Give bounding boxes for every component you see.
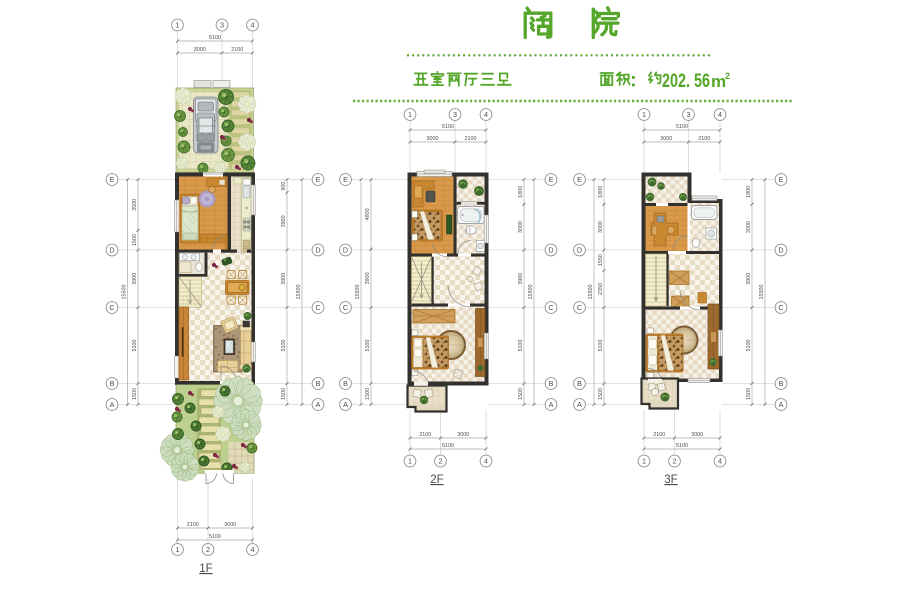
svg-text:1800: 1800 xyxy=(598,186,604,198)
svg-text:2: 2 xyxy=(725,71,730,81)
svg-text:1: 1 xyxy=(642,457,646,466)
svg-text:1: 1 xyxy=(408,110,412,119)
svg-text:4800: 4800 xyxy=(365,208,371,220)
svg-text:1500: 1500 xyxy=(132,388,138,400)
svg-text:C: C xyxy=(778,303,783,312)
svg-text:A: A xyxy=(549,400,554,409)
svg-text:4: 4 xyxy=(484,110,488,119)
svg-text:3900: 3900 xyxy=(746,273,752,285)
svg-text:15500: 15500 xyxy=(122,285,128,300)
svg-text:4: 4 xyxy=(251,21,255,30)
svg-text:3900: 3900 xyxy=(281,215,287,227)
svg-text:5100: 5100 xyxy=(442,124,454,130)
svg-text:B: B xyxy=(577,379,582,388)
svg-text:3000: 3000 xyxy=(194,47,206,53)
svg-text:5100: 5100 xyxy=(365,340,371,352)
svg-text:3: 3 xyxy=(220,21,224,30)
svg-text:3900: 3900 xyxy=(132,273,138,285)
svg-text:2100: 2100 xyxy=(419,432,431,438)
svg-text:B: B xyxy=(779,379,784,388)
svg-text:2: 2 xyxy=(439,457,443,466)
svg-text:m: m xyxy=(711,72,726,91)
svg-text:B: B xyxy=(343,379,348,388)
svg-text:E: E xyxy=(549,175,554,184)
svg-text:1500: 1500 xyxy=(132,234,138,246)
svg-text:5100: 5100 xyxy=(442,443,454,449)
svg-text:4: 4 xyxy=(251,545,255,554)
svg-text:1F: 1F xyxy=(199,563,212,575)
svg-text:5100: 5100 xyxy=(676,124,688,130)
svg-text:4: 4 xyxy=(718,110,722,119)
svg-text:15500: 15500 xyxy=(296,285,302,300)
svg-text:5100: 5100 xyxy=(281,340,287,352)
svg-text:E: E xyxy=(343,175,348,184)
svg-text:3900: 3900 xyxy=(365,272,371,284)
svg-text:B: B xyxy=(110,379,115,388)
svg-text:D: D xyxy=(109,246,114,255)
svg-text:1500: 1500 xyxy=(746,388,752,400)
svg-text:3000: 3000 xyxy=(457,432,469,438)
svg-text:C: C xyxy=(343,303,348,312)
svg-text:2100: 2100 xyxy=(653,432,665,438)
svg-text:3500: 3500 xyxy=(132,199,138,211)
svg-text:15500: 15500 xyxy=(528,285,534,300)
svg-text:3: 3 xyxy=(687,110,691,119)
svg-text:E: E xyxy=(779,175,784,184)
svg-text:1: 1 xyxy=(408,457,412,466)
svg-text:3900: 3900 xyxy=(281,273,287,285)
svg-text:A: A xyxy=(343,400,348,409)
svg-text:B: B xyxy=(549,379,554,388)
svg-text:D: D xyxy=(315,246,320,255)
svg-text:1: 1 xyxy=(642,110,646,119)
svg-text:15500: 15500 xyxy=(355,285,361,300)
svg-text:5100: 5100 xyxy=(676,443,688,449)
svg-text:2100: 2100 xyxy=(187,522,199,528)
svg-text:3000: 3000 xyxy=(224,522,236,528)
svg-text:2F: 2F xyxy=(430,474,443,486)
svg-text:C: C xyxy=(577,303,582,312)
svg-text:C: C xyxy=(548,303,553,312)
svg-text:202. 56: 202. 56 xyxy=(662,71,710,92)
svg-text:E: E xyxy=(110,175,115,184)
svg-text:1500: 1500 xyxy=(598,388,604,400)
svg-text:2350: 2350 xyxy=(598,283,604,295)
svg-text:1: 1 xyxy=(176,545,180,554)
svg-text:3000: 3000 xyxy=(691,432,703,438)
svg-text:1500: 1500 xyxy=(281,388,287,400)
svg-text:D: D xyxy=(548,246,553,255)
svg-text:B: B xyxy=(316,379,321,388)
svg-text:1500: 1500 xyxy=(365,388,371,400)
svg-text:D: D xyxy=(343,246,348,255)
svg-text:4: 4 xyxy=(484,457,488,466)
svg-text:5100: 5100 xyxy=(598,340,604,352)
svg-text:3: 3 xyxy=(453,110,457,119)
svg-text:5100: 5100 xyxy=(132,340,138,352)
svg-text:5100: 5100 xyxy=(209,35,221,41)
svg-text:2100: 2100 xyxy=(698,136,710,142)
svg-text:3000: 3000 xyxy=(746,221,752,233)
svg-text:1500: 1500 xyxy=(518,388,524,400)
svg-text:A: A xyxy=(316,400,321,409)
svg-text:E: E xyxy=(577,175,582,184)
svg-text:15500: 15500 xyxy=(588,285,594,300)
svg-text:2: 2 xyxy=(206,545,210,554)
svg-text:1800: 1800 xyxy=(518,186,524,198)
svg-text:3000: 3000 xyxy=(518,221,524,233)
svg-text:3F: 3F xyxy=(664,474,677,486)
svg-text:5100: 5100 xyxy=(209,534,221,540)
svg-text:A: A xyxy=(110,400,115,409)
svg-text:A: A xyxy=(577,400,582,409)
svg-text:900: 900 xyxy=(281,182,287,191)
svg-text:15500: 15500 xyxy=(759,285,765,300)
svg-text:2100: 2100 xyxy=(231,47,243,53)
svg-text:D: D xyxy=(577,246,582,255)
svg-text:1: 1 xyxy=(176,21,180,30)
svg-text:4: 4 xyxy=(718,457,722,466)
svg-text:C: C xyxy=(315,303,320,312)
svg-text:5100: 5100 xyxy=(746,340,752,352)
svg-text:3000: 3000 xyxy=(660,136,672,142)
svg-text:1800: 1800 xyxy=(746,186,752,198)
svg-text:E: E xyxy=(316,175,321,184)
svg-text:2: 2 xyxy=(673,457,677,466)
svg-text:3000: 3000 xyxy=(427,136,439,142)
svg-text:3900: 3900 xyxy=(518,273,524,285)
svg-text:D: D xyxy=(778,246,783,255)
svg-text:2100: 2100 xyxy=(465,136,477,142)
svg-text:A: A xyxy=(779,400,784,409)
svg-text:3000: 3000 xyxy=(598,221,604,233)
svg-text:C: C xyxy=(109,303,114,312)
svg-text:5100: 5100 xyxy=(518,340,524,352)
svg-text:1550: 1550 xyxy=(598,254,604,266)
